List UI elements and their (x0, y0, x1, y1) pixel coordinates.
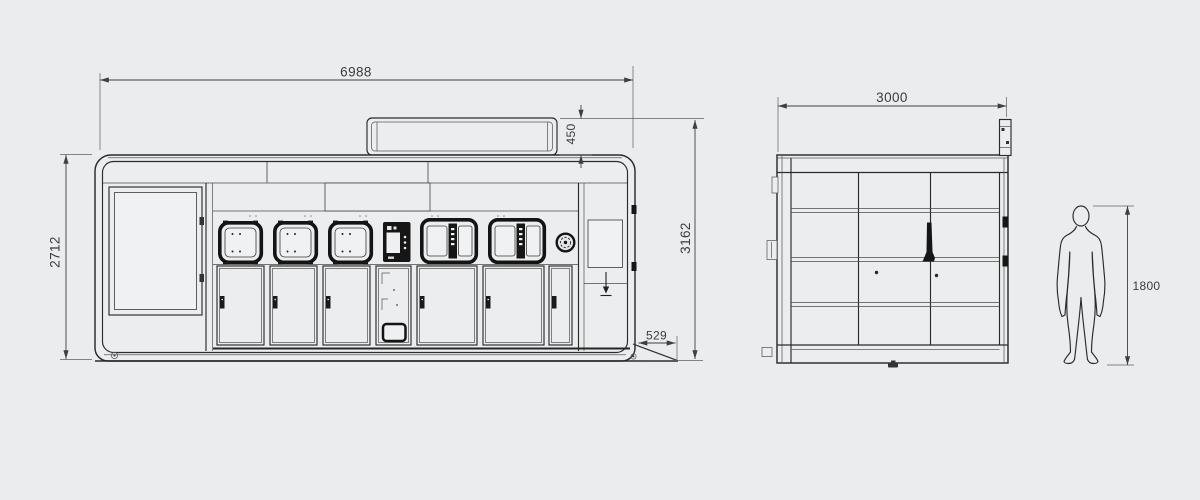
human-figure: 1800 (1057, 206, 1160, 365)
end-body-outline (777, 155, 1008, 363)
panel-button (404, 247, 407, 250)
roof-sign-panel (325, 183, 430, 211)
door-handle (552, 296, 557, 309)
porthole-window-2 (275, 221, 317, 265)
dim-ramp-depth-label: 529 (646, 329, 667, 343)
split-window-1 (422, 220, 477, 262)
dimension-end-width: 3000 (778, 90, 1007, 152)
control-panel (383, 222, 411, 262)
end-elevation-view: 3000 (762, 90, 1011, 368)
dimension-body-height: 2712 (48, 155, 92, 360)
dim-overall-height-label: 3162 (678, 222, 693, 254)
split-window-2 (490, 220, 545, 262)
hinge-fitting (767, 241, 777, 260)
door-handle (420, 296, 425, 309)
dim-end-width-label: 3000 (876, 90, 908, 105)
drawing-canvas: 6988 2712 450 3162 529 (0, 0, 1200, 500)
panel-button (404, 241, 407, 244)
roof-unit (367, 118, 557, 155)
technical-drawing: 6988 2712 450 3162 529 (0, 0, 1200, 500)
dimension-ramp-depth: 529 (639, 329, 678, 361)
left-window-panel (109, 187, 204, 315)
dimension-human-height: 1800 (1093, 206, 1160, 365)
hinge-mark (200, 274, 205, 282)
dimension-overall-height: 3162 (645, 120, 703, 361)
dimension-roof-unit-height: 450 (559, 105, 704, 168)
hinge-mark (200, 217, 205, 225)
door-handle (220, 296, 225, 309)
latch-fitting (772, 177, 778, 193)
porthole-window-3 (330, 221, 372, 265)
vent-fan (557, 234, 575, 252)
panel-button (404, 236, 407, 239)
base-step (762, 348, 772, 357)
human-body-outline (1057, 227, 1105, 364)
side-access-panel (588, 220, 623, 268)
door-knob-dot (935, 274, 938, 277)
door-knob-dot (875, 271, 878, 274)
dim-human-height-label: 1800 (1133, 279, 1161, 293)
door-handle (486, 296, 491, 309)
human-head (1073, 206, 1089, 226)
outlet-port (383, 324, 406, 341)
dim-body-height-label: 2712 (48, 236, 63, 268)
control-screen (387, 233, 401, 254)
center-foot (888, 363, 898, 368)
door-handle (273, 296, 278, 309)
door-handle (326, 296, 331, 309)
dim-roof-unit-height-label: 450 (564, 124, 578, 145)
porthole-window-1 (220, 221, 261, 265)
dim-overall-width-label: 6988 (340, 65, 372, 80)
base-ramp (633, 344, 677, 360)
vent-pipe (1000, 120, 1012, 156)
front-elevation-view: 6988 2712 450 3162 529 (48, 65, 704, 362)
